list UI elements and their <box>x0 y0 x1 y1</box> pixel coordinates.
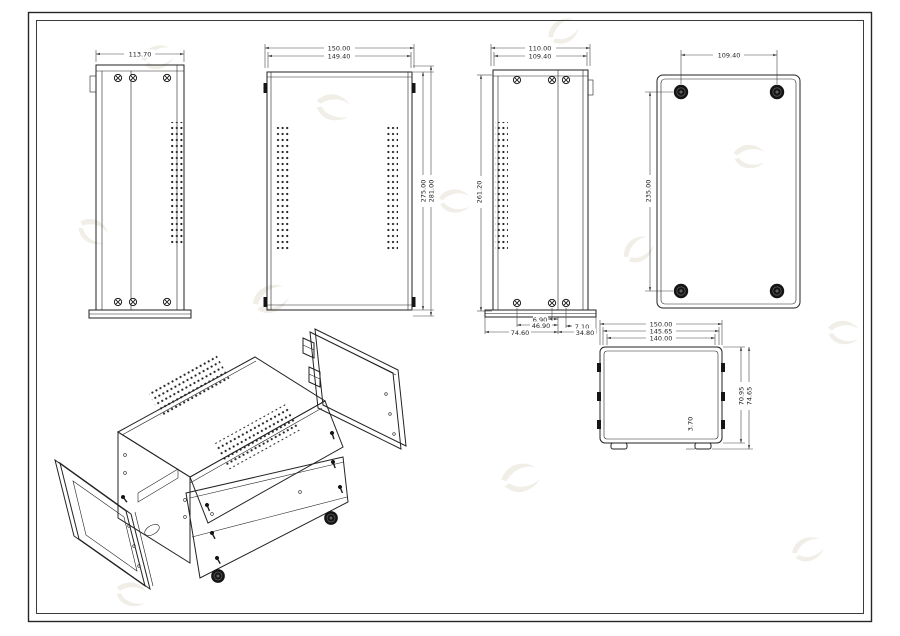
enclosure-engineering-drawing: 113.70 150.00 1 <box>0 0 900 636</box>
feet-span-height-dimension: 235.00 <box>644 92 673 291</box>
dim-label: 46.90 <box>532 322 551 330</box>
front-panel-outline <box>600 347 722 443</box>
screws <box>114 74 170 305</box>
mount-tab <box>412 83 416 93</box>
vent-holes <box>213 404 301 471</box>
mount-tabs <box>597 363 725 429</box>
exploded-cover-body <box>118 355 343 563</box>
front-width-dimensions: 150.00 145.65 140.00 <box>600 320 722 345</box>
rubber-feet <box>674 85 784 298</box>
dim-label: 261.20 <box>476 181 484 204</box>
top-cover-height-dimensions: 275.00 281.00 <box>413 66 436 316</box>
bottom-panel-view: 110.00 109.40 261.20 <box>475 44 596 337</box>
dim-label: 275.00 <box>420 180 428 203</box>
top-cover-width-dimensions: 150.00 149.40 <box>265 44 414 68</box>
dim-label: 149.40 <box>328 53 351 61</box>
bottom-panel-width-dimensions: 110.00 109.40 <box>491 44 590 66</box>
dim-label: 110.00 <box>529 45 552 53</box>
base-plate-outline <box>657 75 800 308</box>
mount-tab <box>412 297 416 307</box>
screws <box>513 76 569 306</box>
dim-label: 281.00 <box>428 180 436 203</box>
cover-slot <box>138 469 178 502</box>
dim-label: 70.95 <box>737 387 745 406</box>
dim-label: 74.65 <box>745 387 753 406</box>
front-view: 150.00 145.65 140.00 70.95 74.65 3.70 <box>597 320 753 449</box>
side-tab <box>588 80 593 95</box>
dim-label: 113.70 <box>129 51 152 59</box>
dim-label: 140.00 <box>650 334 673 342</box>
top-cover-view: 150.00 149.40 275.00 281.00 <box>264 44 436 316</box>
base-plate-view: 109.40 235.00 <box>644 50 800 308</box>
vent-holes <box>276 124 289 252</box>
dim-label: 34.80 <box>576 329 595 337</box>
dim-label: 109.40 <box>529 53 552 61</box>
page-border <box>29 13 872 622</box>
bottom-cutout-dimensions: 6.90 46.90 7.10 74.60 34.80 <box>485 308 596 337</box>
dim-label: 74.60 <box>511 329 530 337</box>
exploded-rear-panel <box>303 329 406 449</box>
mount-tab <box>264 297 268 307</box>
dim-label: 109.40 <box>718 52 741 60</box>
vent-holes <box>148 355 230 417</box>
side-tab <box>90 76 96 92</box>
bottom-panel-height-dimension: 261.20 <box>475 75 492 311</box>
exploded-bottom-tray <box>186 457 348 583</box>
vent-holes <box>170 122 183 246</box>
dim-label: 3.70 <box>686 417 694 431</box>
mount-tab <box>264 83 268 93</box>
front-feet <box>611 443 711 449</box>
exploded-assembly-view <box>55 329 406 589</box>
side-panel-view: 113.70 <box>89 50 191 319</box>
vent-holes <box>385 124 398 252</box>
exploded-front-panel <box>55 460 153 589</box>
dim-label: 235.00 <box>645 180 653 203</box>
dim-label: 150.00 <box>328 45 351 53</box>
vent-holes <box>495 122 508 250</box>
front-height-dimensions: 70.95 74.65 3.70 <box>686 347 753 449</box>
